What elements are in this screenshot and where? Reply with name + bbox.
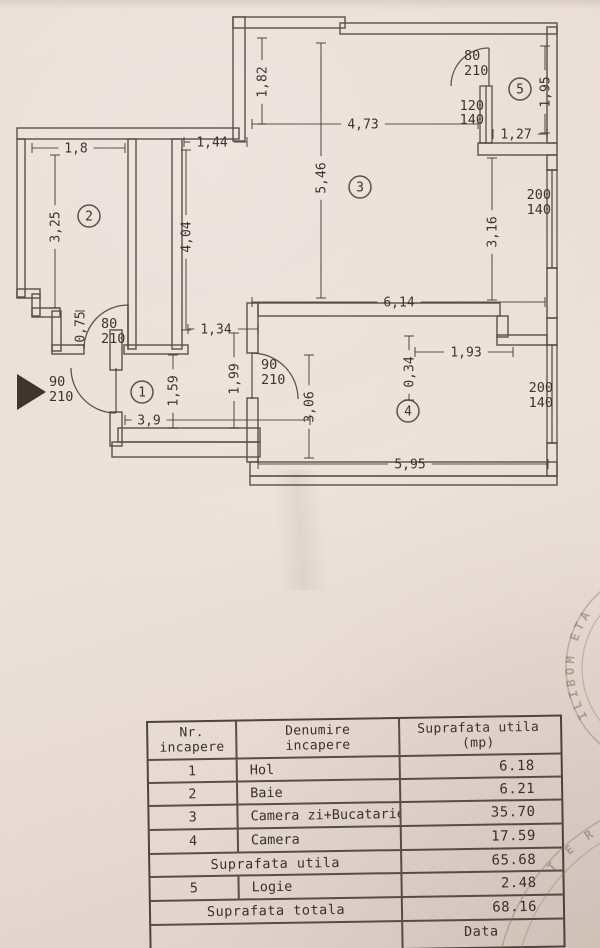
stamp-letter: E bbox=[562, 842, 577, 857]
window-logie bbox=[480, 86, 492, 143]
room-name: Camera zi+Bucatarie bbox=[238, 803, 401, 828]
dimension-label: 1,8 bbox=[64, 142, 87, 157]
window-camera bbox=[547, 345, 557, 443]
header-line: incapere bbox=[159, 740, 224, 756]
room-name: Baie bbox=[238, 780, 401, 804]
door-size-label: 210 bbox=[261, 372, 285, 388]
room-nr: 3 bbox=[149, 806, 238, 829]
room-nr: 4 bbox=[150, 830, 239, 853]
paper-crease bbox=[0, 470, 600, 590]
stamp-letter: O bbox=[563, 668, 577, 676]
subtotal-label: Suprafata utila bbox=[150, 851, 402, 876]
room-number-circle: 4 bbox=[397, 400, 419, 422]
dimension-label: 3,06 bbox=[303, 391, 318, 422]
room-numbers: 12345 bbox=[78, 78, 531, 422]
dimension-label: 1,27 bbox=[500, 128, 531, 143]
empty-cell bbox=[151, 922, 403, 948]
door-size-label: 80 bbox=[101, 316, 117, 332]
room-name: Logie bbox=[239, 874, 402, 899]
door-arcs bbox=[71, 48, 489, 413]
header-nr-incapere: Nr. incapere bbox=[148, 722, 238, 759]
room-area: 6.18 bbox=[401, 755, 557, 778]
camera-door-arc bbox=[252, 353, 298, 399]
total-label: Suprafata totala bbox=[151, 898, 403, 924]
stamp-letter: I bbox=[566, 689, 581, 700]
room-area: 17.59 bbox=[402, 825, 558, 849]
dimension-label: 1,44 bbox=[196, 136, 227, 151]
header-denumire: Denumire incapere bbox=[237, 719, 401, 758]
dimension-label: 1,99 bbox=[228, 363, 243, 394]
dimension-label: 5,46 bbox=[315, 162, 330, 193]
header-suprafata: Suprafata utila (mp) bbox=[400, 717, 557, 755]
door-size-label: 80 bbox=[464, 48, 480, 64]
entrance-door-arc bbox=[71, 368, 116, 413]
dimension-label: 4,73 bbox=[347, 118, 378, 133]
room-area: 6.21 bbox=[401, 778, 557, 801]
room-number-circle: 3 bbox=[349, 176, 371, 198]
stamp-letter: I bbox=[575, 709, 591, 722]
subtotal-area: 65.68 bbox=[402, 849, 558, 872]
dimension-label: 1,82 bbox=[256, 66, 271, 97]
dimensions: 1,81,444,731,271,343,91,936,145,951,825,… bbox=[32, 38, 554, 473]
door-window-labels: 90210802109021080210120140200140200140 bbox=[49, 48, 553, 411]
entrance-arrow bbox=[17, 374, 46, 410]
window-size-label: 140 bbox=[460, 112, 484, 128]
stamp-letter: T bbox=[571, 620, 587, 633]
stamp-letter: E bbox=[567, 631, 583, 642]
dimension-label: 1,93 bbox=[450, 346, 481, 361]
door-size-label: 90 bbox=[261, 357, 277, 373]
dimension-label: 0,34 bbox=[403, 356, 418, 387]
room-area: 35.70 bbox=[401, 801, 557, 825]
data-label: Data bbox=[403, 920, 559, 948]
header-line: Suprafata utila bbox=[417, 720, 539, 737]
logie-door-arc bbox=[451, 48, 489, 86]
room-area: 2.48 bbox=[402, 872, 558, 896]
dimension-label: 3,25 bbox=[49, 211, 64, 242]
room-number: 5 bbox=[516, 83, 524, 98]
table-header-row: Nr. incapere Denumire incapere Suprafata… bbox=[148, 716, 561, 760]
dimension-label: 3,16 bbox=[486, 216, 501, 247]
stamp-letter: R bbox=[582, 827, 596, 843]
door-size-label: 90 bbox=[49, 374, 65, 390]
header-line: incapere bbox=[285, 738, 350, 754]
door-size-label: 210 bbox=[101, 331, 125, 347]
door-size-label: 210 bbox=[49, 389, 73, 405]
dimension-label: 0,75 bbox=[74, 311, 89, 342]
dimension-label: 6,14 bbox=[383, 296, 414, 311]
window-size-label: 200 bbox=[527, 187, 551, 203]
room-number: 1 bbox=[138, 386, 146, 401]
stamp-letter: A bbox=[577, 609, 593, 623]
dimension-label: 1,59 bbox=[167, 375, 182, 406]
stamp-letter: M bbox=[563, 656, 578, 664]
stamp-letter: L bbox=[570, 699, 586, 711]
window-size-label: 200 bbox=[529, 380, 553, 396]
windows bbox=[480, 86, 557, 443]
dimension-label: 3,9 bbox=[137, 414, 160, 429]
baie-door-arc bbox=[84, 305, 128, 349]
room-number: 3 bbox=[356, 181, 364, 196]
walls bbox=[17, 17, 557, 485]
room-number: 4 bbox=[404, 405, 412, 420]
room-nr: 2 bbox=[149, 783, 238, 805]
photographed-floor-plan-page: Nr. incapere Denumire incapere Suprafata… bbox=[0, 0, 600, 948]
dimension-label: 4,04 bbox=[180, 221, 195, 252]
room-nr: 1 bbox=[149, 760, 238, 782]
paper-edge-shadow bbox=[0, 0, 600, 10]
dimension-label: 1,95 bbox=[539, 76, 554, 107]
total-area: 68.16 bbox=[403, 896, 559, 920]
window-size-label: 140 bbox=[527, 202, 551, 218]
header-line: Nr. bbox=[179, 725, 204, 740]
stamp-letter: B bbox=[564, 678, 579, 687]
room-name: Hol bbox=[238, 757, 401, 781]
header-line: Denumire bbox=[285, 723, 350, 739]
room-number: 2 bbox=[85, 210, 93, 225]
window-size-label: 120 bbox=[460, 98, 484, 114]
room-nr: 5 bbox=[150, 877, 239, 900]
window-size-label: 140 bbox=[529, 395, 553, 411]
door-size-label: 210 bbox=[464, 63, 488, 79]
area-table: Nr. incapere Denumire incapere Suprafata… bbox=[146, 714, 566, 948]
room-number-circle: 1 bbox=[131, 381, 153, 403]
stamp-upper: ATEMOBILI bbox=[563, 566, 600, 770]
window-living bbox=[547, 170, 557, 268]
dimension-label: 5,95 bbox=[394, 458, 425, 473]
room-number-circle: 2 bbox=[78, 205, 100, 227]
room-number-circle: 5 bbox=[509, 78, 531, 100]
dimension-label: 1,34 bbox=[200, 323, 231, 338]
room-name: Camera bbox=[239, 827, 402, 852]
header-line: (mp) bbox=[462, 736, 495, 752]
